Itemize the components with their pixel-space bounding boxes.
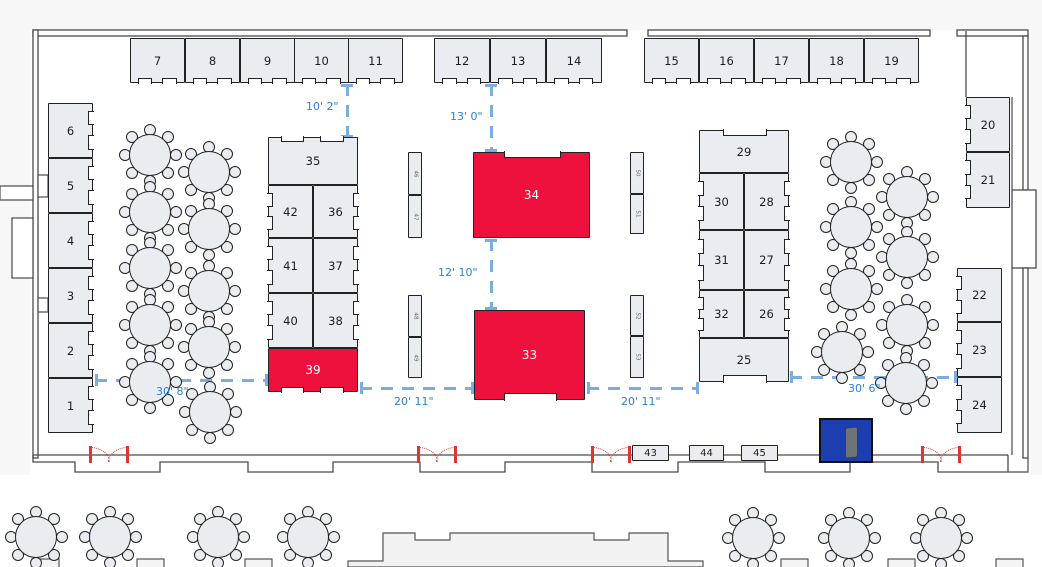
- wall-right-lower: [1023, 268, 1028, 458]
- booth-notch: [88, 190, 94, 204]
- booth-notch: [896, 78, 910, 84]
- booth-notch: [353, 246, 359, 260]
- table-top: [885, 362, 927, 404]
- booth-42[interactable]: 42: [268, 185, 313, 238]
- booth-label: 1: [67, 399, 74, 413]
- round-table: [819, 195, 883, 259]
- measurement-tick: [485, 84, 497, 87]
- booth-44[interactable]: 44: [689, 445, 724, 461]
- double-door: [89, 446, 129, 463]
- booth-notch: [762, 78, 776, 84]
- booth-25[interactable]: 25: [699, 338, 789, 382]
- round-table: [874, 351, 938, 415]
- booth-51[interactable]: 51: [630, 194, 644, 234]
- booth-label: 31: [714, 253, 729, 267]
- booth-34[interactable]: 34: [473, 152, 590, 238]
- exterior-strip-top: [0, 0, 1042, 30]
- booth-notch: [356, 78, 370, 84]
- chair: [927, 191, 939, 203]
- booth-notch: [467, 78, 482, 84]
- booth-32[interactable]: 32: [699, 290, 744, 338]
- booth-notch: [248, 78, 262, 84]
- table-top: [830, 141, 872, 183]
- booth-36[interactable]: 36: [313, 185, 358, 238]
- booth-notch: [320, 136, 343, 142]
- booth-notch: [504, 151, 560, 158]
- chair: [900, 403, 912, 415]
- booth-label: 53: [634, 354, 640, 361]
- booth-notch: [281, 387, 304, 393]
- booth-label: 51: [634, 211, 640, 218]
- booth-53[interactable]: 53: [630, 336, 644, 378]
- booth-notch: [698, 265, 704, 281]
- table-top: [287, 516, 329, 558]
- chair: [901, 277, 913, 289]
- booth-46[interactable]: 46: [408, 152, 422, 195]
- booth-label: 16: [719, 54, 734, 68]
- measurement-label: 20' 11": [621, 395, 661, 408]
- left-corridor: [0, 186, 33, 200]
- blue-equipment: [819, 418, 873, 463]
- booth-notch: [784, 181, 790, 196]
- booth-label: 45: [753, 448, 766, 459]
- chair: [204, 432, 216, 444]
- booth-notch: [698, 206, 704, 221]
- booth-notch: [956, 330, 962, 344]
- booth-notch: [784, 297, 790, 309]
- wall-left: [33, 30, 38, 458]
- booth-notch: [956, 410, 962, 425]
- booth-16[interactable]: 16: [699, 38, 754, 83]
- chair: [56, 531, 68, 543]
- chair: [869, 532, 881, 544]
- table-top: [89, 516, 131, 558]
- wall-tab: [38, 298, 48, 312]
- table-top: [188, 326, 230, 368]
- chair: [845, 182, 857, 194]
- round-table: [819, 130, 883, 194]
- booth-label: 25: [737, 353, 752, 367]
- booth-notch: [698, 181, 704, 196]
- double-door: [417, 446, 457, 463]
- booth-notch: [88, 410, 94, 424]
- booth-notch: [965, 185, 971, 200]
- round-table: [177, 197, 241, 261]
- booth-label: 49: [412, 354, 418, 361]
- equipment-lid: [845, 426, 858, 458]
- booth-notch: [784, 265, 790, 281]
- measurement-tick: [696, 382, 699, 394]
- chair: [229, 341, 241, 353]
- booth-notch: [281, 136, 304, 142]
- booth-label: 26: [759, 307, 774, 321]
- table-top: [920, 517, 962, 559]
- round-table: [118, 350, 182, 414]
- booth-label: 5: [67, 179, 74, 193]
- measurement-line: [587, 387, 698, 390]
- booth-notch: [353, 193, 359, 207]
- booth-label: 35: [306, 154, 321, 168]
- booth-label: 3: [67, 289, 74, 303]
- door-leaf-arc: [108, 447, 128, 462]
- round-table: [875, 225, 939, 289]
- wall-right-jut: [1012, 190, 1036, 268]
- booth-notch: [698, 239, 704, 255]
- chair: [238, 531, 250, 543]
- booth-notch: [302, 78, 316, 84]
- booth-notch: [193, 78, 207, 84]
- booth-notch: [841, 78, 855, 84]
- booth-notch: [498, 78, 513, 84]
- table-top: [15, 516, 57, 558]
- booth-notch: [784, 239, 790, 255]
- door-leaf-arc: [90, 447, 110, 462]
- round-table: [875, 165, 939, 229]
- booth-label: 29: [737, 145, 752, 159]
- booth-notch: [267, 301, 273, 315]
- table-top: [188, 151, 230, 193]
- booth-13[interactable]: 13: [490, 38, 546, 83]
- booth-notch: [872, 78, 886, 84]
- booth-label: 14: [567, 54, 582, 68]
- booth-label: 38: [328, 314, 343, 328]
- round-table: [4, 505, 68, 567]
- booth-2[interactable]: 2: [48, 323, 93, 378]
- booth-5[interactable]: 5: [48, 158, 93, 213]
- booth-label: 30: [714, 195, 729, 209]
- measurement-tick: [341, 84, 353, 87]
- booth-label: 10: [314, 54, 329, 68]
- measurement-label: 12' 10": [438, 266, 478, 279]
- booth-label: 39: [305, 363, 320, 377]
- booth-23[interactable]: 23: [957, 322, 1002, 377]
- booth-8[interactable]: 8: [185, 38, 240, 83]
- door-leaf-arc: [922, 447, 942, 462]
- booth-notch: [554, 78, 569, 84]
- round-table: [177, 140, 241, 204]
- round-table: [276, 505, 340, 567]
- measurement-tick: [587, 382, 590, 394]
- measurement-tick: [360, 382, 363, 394]
- door-leaf-arc: [940, 447, 960, 462]
- booth-notch: [707, 78, 721, 84]
- round-table: [177, 315, 241, 379]
- measurement-tick: [485, 239, 497, 242]
- booth-notch: [817, 78, 831, 84]
- booth-label: 48: [412, 313, 418, 320]
- booth-label: 18: [829, 54, 844, 68]
- booth-9[interactable]: 9: [240, 38, 295, 83]
- booth-notch: [88, 111, 94, 125]
- double-door: [591, 446, 631, 463]
- booth-label: 32: [714, 307, 729, 321]
- round-table: [118, 123, 182, 187]
- round-table: [177, 259, 241, 323]
- booth-47[interactable]: 47: [408, 195, 422, 238]
- chair: [961, 532, 973, 544]
- booth-notch: [731, 78, 745, 84]
- measurement-line: [360, 387, 473, 390]
- booth-label: 9: [264, 54, 271, 68]
- round-table: [186, 505, 250, 567]
- chair: [144, 402, 156, 414]
- measurement-line: [346, 84, 349, 137]
- booth-label: 41: [283, 259, 298, 273]
- booth-10[interactable]: 10: [294, 38, 349, 83]
- table-top: [886, 176, 928, 218]
- booth-notch: [956, 300, 962, 314]
- measurement-label: 30' 8": [156, 385, 189, 398]
- chair: [130, 531, 142, 543]
- booth-notch: [267, 216, 273, 230]
- booth-notch: [380, 78, 394, 84]
- booth-notch: [326, 78, 340, 84]
- chair: [927, 319, 939, 331]
- chair: [104, 557, 116, 567]
- booth-label: 44: [700, 448, 713, 459]
- booth-notch: [88, 355, 94, 369]
- chair: [212, 557, 224, 567]
- chair: [328, 531, 340, 543]
- floor-plan-canvas: 10' 2"13' 0"12' 10"30' 8"20' 11"20' 11"3…: [0, 0, 1042, 567]
- booth-20[interactable]: 20: [966, 97, 1010, 152]
- booth-notch: [442, 78, 457, 84]
- booth-label: 28: [759, 195, 774, 209]
- booth-38[interactable]: 38: [313, 293, 358, 348]
- booth-label: 13: [511, 54, 526, 68]
- booth-label: 15: [664, 54, 679, 68]
- booth-label: 7: [154, 54, 161, 68]
- chair: [926, 377, 938, 389]
- table-top: [828, 517, 870, 559]
- booth-24[interactable]: 24: [957, 377, 1002, 433]
- booth-41[interactable]: 41: [268, 238, 313, 293]
- table-top: [129, 191, 171, 233]
- booth-label: 12: [455, 54, 470, 68]
- chair: [845, 309, 857, 321]
- booth-12[interactable]: 12: [434, 38, 490, 83]
- table-top: [129, 134, 171, 176]
- booth-11[interactable]: 11: [348, 38, 403, 83]
- booth-35[interactable]: 35: [268, 137, 358, 185]
- table-top: [188, 208, 230, 250]
- chair: [927, 251, 939, 263]
- booth-label: 47: [412, 213, 418, 220]
- table-top: [830, 206, 872, 248]
- wall-top: [33, 30, 1028, 36]
- booth-notch: [523, 78, 538, 84]
- chair: [302, 557, 314, 567]
- booth-notch: [579, 78, 594, 84]
- booth-notch: [956, 354, 962, 368]
- booth-label: 4: [67, 234, 74, 248]
- booth-label: 27: [759, 253, 774, 267]
- booth-1[interactable]: 1: [48, 378, 93, 433]
- round-table: [819, 257, 883, 321]
- booth-notch: [676, 78, 690, 84]
- booth-label: 40: [283, 314, 298, 328]
- table-top: [197, 516, 239, 558]
- booth-notch: [88, 331, 94, 345]
- measurement-label: 30' 6": [848, 382, 881, 395]
- booth-6[interactable]: 6: [48, 103, 93, 158]
- measurement-label: 13' 0": [450, 110, 483, 123]
- table-top: [886, 236, 928, 278]
- round-table: [78, 505, 142, 567]
- chair: [836, 372, 848, 384]
- booth-22[interactable]: 22: [957, 268, 1002, 322]
- booth-notch: [784, 318, 790, 330]
- booth-label: 24: [972, 398, 987, 412]
- booth-notch: [217, 78, 231, 84]
- round-table: [118, 236, 182, 300]
- left-stage-alcove: [12, 218, 33, 278]
- booth-notch: [267, 193, 273, 207]
- chair: [862, 346, 874, 358]
- round-table: [909, 506, 973, 567]
- booth-label: 19: [884, 54, 899, 68]
- booth-notch: [88, 386, 94, 400]
- booth-notch: [353, 325, 359, 339]
- booth-notch: [272, 78, 286, 84]
- booth-28[interactable]: 28: [744, 173, 789, 230]
- booth-notch: [88, 135, 94, 149]
- booth-label: 52: [634, 312, 640, 319]
- booth-49[interactable]: 49: [408, 337, 422, 378]
- booth-label: 43: [644, 448, 657, 459]
- booth-label: 34: [524, 188, 539, 202]
- booth-notch: [956, 276, 962, 290]
- booth-43[interactable]: 43: [632, 445, 669, 461]
- booth-4[interactable]: 4: [48, 213, 93, 268]
- booth-label: 11: [368, 54, 383, 68]
- wall-right-upper: [1023, 36, 1028, 190]
- measurement-tick: [95, 374, 98, 386]
- round-table: [721, 506, 785, 567]
- round-table: [817, 506, 881, 567]
- booth-15[interactable]: 15: [644, 38, 699, 83]
- booth-notch: [956, 385, 962, 400]
- booth-17[interactable]: 17: [754, 38, 809, 83]
- booth-notch: [698, 297, 704, 309]
- booth-21[interactable]: 21: [966, 152, 1010, 208]
- booth-37[interactable]: 37: [313, 238, 358, 293]
- booth-45[interactable]: 45: [741, 445, 778, 461]
- chair: [773, 532, 785, 544]
- booth-notch: [353, 301, 359, 315]
- round-table: [118, 180, 182, 244]
- booth-label: 46: [412, 170, 418, 177]
- booth-label: 50: [634, 170, 640, 177]
- chair: [30, 557, 42, 567]
- booth-notch: [267, 325, 273, 339]
- booth-notch: [162, 78, 176, 84]
- measurement-tick: [790, 371, 793, 383]
- booth-notch: [267, 246, 273, 260]
- booth-notch: [784, 206, 790, 221]
- booth-40[interactable]: 40: [268, 293, 313, 348]
- booth-14[interactable]: 14: [546, 38, 602, 83]
- booth-notch: [504, 393, 557, 401]
- booth-notch: [353, 270, 359, 284]
- booth-notch: [723, 375, 766, 383]
- round-table: [118, 293, 182, 357]
- round-table: [810, 320, 874, 384]
- table-top: [732, 517, 774, 559]
- booth-label: 8: [209, 54, 216, 68]
- door-leaf-arc: [418, 447, 438, 462]
- booth-29[interactable]: 29: [699, 130, 789, 173]
- booth-7[interactable]: 7: [130, 38, 185, 83]
- booth-notch: [267, 270, 273, 284]
- booth-39[interactable]: 39: [268, 348, 358, 392]
- lobby-structure: [348, 533, 703, 567]
- round-table: [875, 293, 939, 357]
- booth-label: 20: [981, 118, 996, 132]
- booth-50[interactable]: 50: [630, 152, 644, 194]
- booth-30[interactable]: 30: [699, 173, 744, 230]
- booth-18[interactable]: 18: [809, 38, 864, 83]
- booth-52[interactable]: 52: [630, 295, 644, 336]
- booth-27[interactable]: 27: [744, 230, 789, 290]
- booth-notch: [353, 216, 359, 230]
- door-leaf-arc: [610, 447, 630, 462]
- booth-label: 22: [972, 288, 987, 302]
- table-top: [129, 304, 171, 346]
- booth-notch: [88, 245, 94, 259]
- table-top: [821, 331, 863, 373]
- booth-19[interactable]: 19: [864, 38, 919, 83]
- booth-notch: [652, 78, 666, 84]
- double-door: [921, 446, 961, 463]
- booth-label: 36: [328, 205, 343, 219]
- booth-label: 33: [522, 348, 537, 362]
- booth-notch: [88, 166, 94, 180]
- booth-48[interactable]: 48: [408, 295, 422, 337]
- chair: [203, 367, 215, 379]
- booth-label: 2: [67, 344, 74, 358]
- table-top: [188, 270, 230, 312]
- booth-label: 37: [328, 259, 343, 273]
- measurement-line: [490, 239, 493, 309]
- measurement-line: [490, 84, 493, 151]
- booth-33[interactable]: 33: [474, 310, 585, 400]
- booth-notch: [965, 129, 971, 143]
- door-leaf-arc: [592, 447, 612, 462]
- door-leaf-arc: [436, 447, 456, 462]
- table-top: [830, 268, 872, 310]
- booth-label: 23: [972, 343, 987, 357]
- booth-31[interactable]: 31: [699, 230, 744, 290]
- booth-notch: [698, 318, 704, 330]
- booth-notch: [88, 276, 94, 290]
- booth-3[interactable]: 3: [48, 268, 93, 323]
- table-top: [886, 304, 928, 346]
- booth-label: 21: [981, 173, 996, 187]
- measurement-label: 10' 2": [306, 100, 339, 113]
- booth-label: 17: [774, 54, 789, 68]
- booth-notch: [320, 387, 343, 393]
- booth-notch: [965, 105, 971, 119]
- booth-26[interactable]: 26: [744, 290, 789, 338]
- chair: [230, 406, 242, 418]
- wall-tab: [38, 175, 48, 197]
- table-top: [189, 391, 231, 433]
- table-top: [129, 247, 171, 289]
- booth-notch: [88, 300, 94, 314]
- booth-notch: [723, 129, 766, 136]
- chair: [229, 166, 241, 178]
